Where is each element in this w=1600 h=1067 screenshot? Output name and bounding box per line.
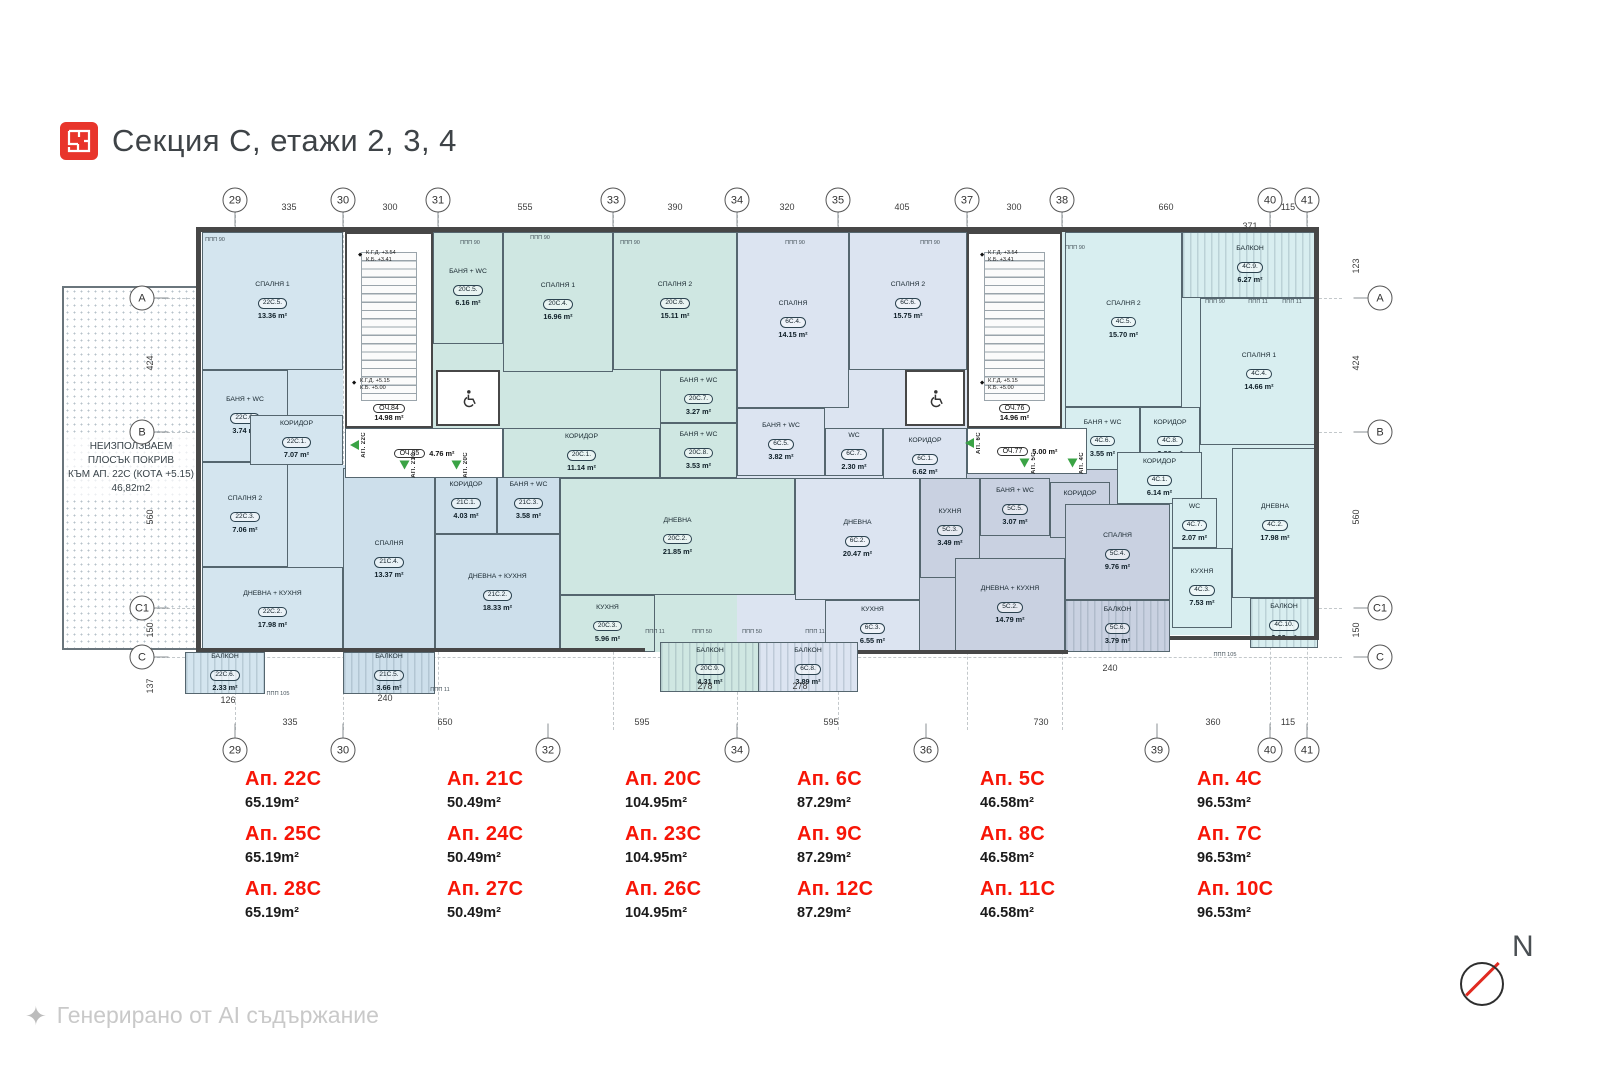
grid-marker: 33 — [601, 188, 626, 213]
room: ДНЕВНА 20C.2. 21.85 m² — [560, 478, 795, 595]
room: СПАЛНЯ 1 4C.4. 14.66 m² — [1200, 298, 1318, 445]
dimension-label: 595 — [823, 717, 838, 727]
room-area: 4.03 m² — [449, 511, 482, 520]
room-code: 4C.4. — [1246, 369, 1272, 379]
room-name: КОРИДОР — [1063, 490, 1096, 499]
room-code: 6C.4. — [780, 317, 806, 327]
apartment-id: Ап. 7C — [1197, 823, 1382, 846]
legend-item: Ап. 8C 46.58m² — [980, 823, 1165, 866]
grid-marker: 29 — [223, 738, 248, 763]
grid-marker: 29 — [223, 188, 248, 213]
apartment-area: 46.58m² — [980, 795, 1165, 811]
room-code: 20C.5. — [453, 285, 482, 295]
room-name: БАНЯ + WC — [680, 377, 718, 386]
compass-ring-icon — [1460, 962, 1504, 1006]
apartment-id: Ап. 23C — [625, 823, 810, 846]
room-area: 15.75 m² — [891, 311, 925, 320]
entrance-arrow-icon: АП. 20C — [452, 452, 469, 478]
room-area: 3.07 m² — [996, 517, 1034, 526]
wall — [196, 227, 1318, 232]
row-marker: C — [1368, 645, 1393, 670]
apartment-id: Ап. 4C — [1197, 768, 1382, 791]
room: БАЛКОН 21C.5. 3.66 m² — [343, 652, 435, 694]
window-marker: ППП 90 — [1065, 245, 1085, 251]
dimension-label: 278 — [792, 681, 807, 691]
north-letter: N — [1512, 930, 1534, 964]
room-name: КОРИДОР — [565, 433, 598, 442]
room-area: 6.27 m² — [1236, 275, 1264, 284]
legend-item: Ап. 9C 87.29m² — [797, 823, 982, 866]
room: СПАЛНЯ 2 20C.6. 15.11 m² — [613, 232, 737, 370]
window-marker: ППП 90 — [530, 235, 550, 241]
entrance-label: АП. 5C — [1031, 452, 1037, 474]
elevation-mark: К.Г.Д. +3.54 К.Б. +3.41 — [358, 250, 396, 264]
legend-item: Ап. 6C 87.29m² — [797, 768, 982, 811]
apartment-area: 104.95m² — [625, 795, 810, 811]
apartment-area: 46.58m² — [980, 850, 1165, 866]
legend-item: Ап. 21C 50.49m² — [447, 768, 632, 811]
arrow-icon — [965, 438, 974, 448]
room: БАЛКОН 4C.9. 6.27 m² — [1182, 232, 1318, 298]
apartment-id: Ап. 20C — [625, 768, 810, 791]
room-name: ДНЕВНА + КУХНЯ — [981, 585, 1039, 594]
room-area: 3.53 m² — [680, 461, 718, 470]
grid-marker: 34 — [725, 188, 750, 213]
grid-marker: 36 — [914, 738, 939, 763]
room-code: 6C.7. — [841, 449, 867, 459]
legend-item: Ап. 11C 46.58m² — [980, 878, 1165, 921]
room-area: 17.98 m² — [243, 620, 301, 629]
core-code: ОЧ.76 — [999, 404, 1031, 413]
room-code: 22C.1. — [282, 437, 311, 447]
room-name: ДНЕВНА + КУХНЯ — [468, 573, 526, 582]
room-name: СПАЛНЯ — [778, 300, 807, 309]
window-marker: ППП 50 — [742, 629, 762, 635]
window-marker: ППП 90 — [785, 240, 805, 246]
dimension-label: 123 — [1351, 258, 1361, 273]
entrance-label: АП. 21C — [411, 452, 417, 478]
dimension-label: 126 — [220, 695, 235, 705]
wall — [196, 227, 201, 652]
dimension-label: 335 — [282, 717, 297, 727]
apartment-id: Ап. 5C — [980, 768, 1165, 791]
room-code: 6C.1. — [912, 454, 938, 464]
window-marker: ППП 90 — [1205, 299, 1225, 305]
sparkle-icon: ✦ — [25, 1003, 47, 1029]
grid-marker: 41 — [1295, 738, 1320, 763]
room-code: 20C.4. — [543, 299, 572, 309]
room-name: WC — [1182, 503, 1208, 512]
grid-marker: 40 — [1258, 738, 1283, 763]
apartment-area: 96.53m² — [1197, 795, 1382, 811]
room-code: 4C.10. — [1269, 620, 1298, 630]
legend-item: Ап. 5C 46.58m² — [980, 768, 1165, 811]
elevator-wheelchair-icon — [905, 370, 965, 426]
apartment-id: Ап. 9C — [797, 823, 982, 846]
room: БАНЯ + WC 6C.5. 3.82 m² — [737, 408, 825, 476]
dimension-label: 405 — [894, 202, 909, 212]
apartment-area: 65.19m² — [245, 795, 430, 811]
room: ДНЕВНА 6C.2. 20.47 m² — [795, 478, 920, 600]
room-code: 4C.3. — [1189, 585, 1215, 595]
elevation-mark: К.Г.Д. +3.54 К.Б. +3.41 — [980, 250, 1018, 264]
room-area: 5.96 m² — [593, 634, 622, 643]
room-area: 2.07 m² — [1182, 533, 1208, 542]
dimension-label: 150 — [1351, 622, 1361, 637]
room-area: 20.47 m² — [843, 549, 872, 558]
dimension-label: 650 — [437, 717, 452, 727]
room: СПАЛНЯ 2 4C.5. 15.70 m² — [1065, 232, 1182, 407]
apartment-area: 65.19m² — [245, 850, 430, 866]
room-name: БАЛКОН — [1269, 603, 1298, 612]
wall — [196, 648, 645, 652]
room-code: 22C.5. — [258, 298, 287, 308]
arrow-icon — [350, 440, 359, 450]
apartment-area: 104.95m² — [625, 850, 810, 866]
dimension-label: 335 — [281, 202, 296, 212]
window-marker: ППП 11 — [805, 629, 824, 635]
room-area: 7.07 m² — [280, 450, 313, 459]
room-name: БАЛКОН — [695, 647, 724, 656]
room-name: БАНЯ + WC — [449, 268, 487, 277]
room-name: СПАЛНЯ 1 — [541, 282, 575, 291]
dimension-label: 278 — [697, 681, 712, 691]
room-area: 6.16 m² — [449, 298, 487, 307]
grid-marker: 30 — [331, 188, 356, 213]
room-name: БАНЯ + WC — [680, 431, 718, 440]
room-name: БАЛКОН — [794, 647, 822, 656]
dimension-label: 555 — [517, 202, 532, 212]
room-area: 9.76 m² — [1103, 562, 1132, 571]
grid-marker: 37 — [955, 188, 980, 213]
legend-item: Ап. 28C 65.19m² — [245, 878, 430, 921]
room-area: 16.96 m² — [541, 312, 575, 321]
row-marker: C1 — [1368, 596, 1393, 621]
lobby: ОЧ.85 4.76 m² — [345, 428, 503, 478]
legend-item: Ап. 27C 50.49m² — [447, 878, 632, 921]
room-area: 3.58 m² — [510, 511, 548, 520]
grid-marker: 31 — [426, 188, 451, 213]
room-code: 22C.6. — [210, 670, 239, 680]
dimension-label: 115 — [1281, 717, 1295, 727]
room: КОРИДОР 22C.1. 7.07 m² — [250, 415, 343, 465]
room-name: СПАЛНЯ — [374, 540, 403, 549]
legend-item: Ап. 24C 50.49m² — [447, 823, 632, 866]
footer: ✦ Генерирано от AI съдържание — [25, 1002, 379, 1029]
entrance-label: АП. 22C — [361, 432, 367, 458]
room-area: 2.33 m² — [210, 683, 239, 692]
room-code: 4C.8. — [1157, 436, 1183, 446]
apartment-id: Ап. 28C — [245, 878, 430, 901]
room: КУХНЯ 4C.3. 7.53 m² — [1172, 548, 1232, 628]
room-code: 22C.3. — [230, 512, 259, 522]
room-area: 3.79 m² — [1104, 636, 1132, 645]
apartment-id: Ап. 22C — [245, 768, 430, 791]
header: Секция С, етажи 2, 3, 4 — [60, 122, 457, 160]
legend-item: Ап. 23C 104.95m² — [625, 823, 810, 866]
room-code: 20C.9. — [695, 664, 724, 674]
room-code: 20C.6. — [660, 298, 689, 308]
room: СПАЛНЯ 1 22C.5. 13.36 m² — [202, 232, 343, 370]
room-area: 15.11 m² — [658, 311, 692, 320]
room-area: 18.33 m² — [468, 603, 526, 612]
core-code: ОЧ.84 — [373, 404, 405, 413]
room: ДНЕВНА + КУХНЯ 22C.2. 17.98 m² — [202, 567, 343, 652]
room: СПАЛНЯ 21C.4. 13.37 m² — [343, 468, 435, 652]
room-area: 11.14 m² — [565, 463, 598, 472]
room-name: БАНЯ + WC — [996, 487, 1034, 496]
legend-item: Ап. 4C 96.53m² — [1197, 768, 1382, 811]
room-code: 5C.5. — [1002, 504, 1028, 514]
room-area: 3.27 m² — [680, 407, 718, 416]
apartment-id: Ап. 11C — [980, 878, 1165, 901]
dimension-label: 371 — [1242, 221, 1257, 231]
apartment-area: 46.58m² — [980, 905, 1165, 921]
window-marker: ППП 90 — [205, 237, 225, 243]
entrance-arrow-icon: АП. 5C — [1020, 452, 1037, 474]
room-name: КОРИДОР — [908, 437, 941, 446]
entrance-label: АП. 20C — [463, 452, 469, 478]
dimension-label: 240 — [377, 693, 392, 703]
room-name: БАЛКОН — [1104, 606, 1132, 615]
page: Секция С, етажи 2, 3, 4 НЕИЗПОЛЗВАЕМ ПЛО… — [0, 0, 1600, 1067]
dimension-label: 560 — [1351, 509, 1361, 524]
apartment-id: Ап. 27C — [447, 878, 632, 901]
entrance-label: АП. 6C — [976, 432, 982, 454]
room-name: БАЛКОН — [1236, 245, 1264, 254]
room-code: 5C.2. — [997, 602, 1023, 612]
room: СПАЛНЯ 1 20C.4. 16.96 m² — [503, 232, 613, 372]
room-name: СПАЛНЯ 2 — [1106, 300, 1140, 309]
terrace-note: НЕИЗПОЛЗВАЕМ ПЛОСЪК ПОКРИВ КЪМ АП. 22С (… — [66, 436, 196, 500]
room-name: КУХНЯ — [860, 606, 886, 615]
room-area: 3.66 m² — [374, 683, 403, 692]
apartment-area: 96.53m² — [1197, 905, 1382, 921]
room-area: 2.30 m² — [841, 462, 867, 471]
room-name: БАНЯ + WC — [226, 396, 264, 405]
grid-marker: 41 — [1295, 188, 1320, 213]
room-area: 15.70 m² — [1106, 330, 1140, 339]
window-marker: ППП 11 — [645, 629, 664, 635]
legend-item: Ап. 12C 87.29m² — [797, 878, 982, 921]
window-marker: ППП 90 — [460, 240, 480, 246]
room-name: БАЛКОН — [210, 653, 239, 662]
room-area: 6.14 m² — [1143, 488, 1176, 497]
room: СПАЛНЯ 6C.4. 14.15 m² — [737, 232, 849, 408]
room-area: 3.55 m² — [1084, 449, 1122, 458]
apartment-area: 104.95m² — [625, 905, 810, 921]
arrow-icon — [1020, 458, 1030, 467]
room-name: КУХНЯ — [593, 604, 622, 613]
legend-item: Ап. 22C 65.19m² — [245, 768, 430, 811]
dimension-label: 137 — [145, 678, 155, 693]
room-area: 13.37 m² — [374, 570, 403, 579]
dimension-label: 150 — [145, 622, 155, 637]
grid-marker: 35 — [826, 188, 851, 213]
room: БАНЯ + WC 20C.7. 3.27 m² — [660, 370, 737, 423]
window-marker: ППП 11 — [430, 687, 449, 693]
room: ДНЕВНА + КУХНЯ 21C.2. 18.33 m² — [435, 534, 560, 652]
room-name: СПАЛНЯ 2 — [228, 495, 262, 504]
room-name: КОРИДОР — [280, 420, 313, 429]
legend-item: Ап. 26C 104.95m² — [625, 878, 810, 921]
room-code: 6C.3. — [860, 623, 886, 633]
room-area: 14.79 m² — [981, 615, 1039, 624]
room-name: ДНЕВНА — [663, 517, 692, 526]
room-code: 4C.1. — [1147, 475, 1173, 485]
dimension-label: 424 — [145, 355, 155, 370]
room-code: 22C.2. — [258, 607, 287, 617]
row-marker: C1 — [130, 596, 155, 621]
room-area: 14.15 m² — [778, 330, 807, 339]
room-code: 6C.8. — [795, 664, 821, 674]
room-area: 13.36 m² — [255, 311, 289, 320]
legend-item: Ап. 10C 96.53m² — [1197, 878, 1382, 921]
dimension-label: 360 — [1205, 717, 1220, 727]
legend-item: Ап. 25C 65.19m² — [245, 823, 430, 866]
room-name: КУХНЯ — [1189, 568, 1215, 577]
room-name: БАНЯ + WC — [1084, 419, 1122, 428]
apartment-id: Ап. 24C — [447, 823, 632, 846]
room-name: ДНЕВНА + КУХНЯ — [243, 590, 301, 599]
entrance-arrow-icon: АП. 22C — [350, 432, 367, 458]
row-marker: B — [1368, 420, 1393, 445]
room-area: 7.53 m² — [1189, 598, 1215, 607]
arrow-icon — [1068, 458, 1078, 467]
dimension-label: 320 — [779, 202, 794, 212]
room-name: БАЛКОН — [374, 653, 403, 662]
apartment-id: Ап. 25C — [245, 823, 430, 846]
room-name: СПАЛНЯ 2 — [891, 281, 925, 290]
window-marker: ППП 11 — [1248, 299, 1267, 305]
window-marker: ППП 105 — [267, 691, 290, 697]
room-name: ДНЕВНА — [843, 519, 872, 528]
room-code: 4C.7. — [1182, 520, 1208, 530]
page-title: Секция С, етажи 2, 3, 4 — [112, 123, 457, 159]
room-name: КОРИДОР — [449, 481, 482, 490]
apartment-id: Ап. 6C — [797, 768, 982, 791]
room: БАЛКОН 4C.10. 3.98 m² — [1250, 598, 1318, 648]
dimension-label: 424 — [1351, 355, 1361, 370]
room-name: ДНЕВНА — [1260, 503, 1289, 512]
dimension-label: 240 — [1102, 663, 1117, 673]
row-marker: A — [130, 286, 155, 311]
wall — [1170, 636, 1318, 640]
room: СПАЛНЯ 5C.4. 9.76 m² — [1065, 504, 1170, 600]
room-code: 5C.4. — [1105, 549, 1131, 559]
grid-marker: 30 — [331, 738, 356, 763]
entrance-arrow-icon: АП. 21C — [400, 452, 417, 478]
room-code: 20C.1. — [567, 450, 596, 460]
dimension-label: 730 — [1033, 717, 1048, 727]
grid-marker: 32 — [536, 738, 561, 763]
apartment-id: Ап. 10C — [1197, 878, 1382, 901]
brand-logo-icon — [60, 122, 98, 160]
core-area: 14.96 m² — [1000, 413, 1029, 422]
room: WC 4C.7. 2.07 m² — [1172, 498, 1217, 548]
footer-text: Генерирано от AI съдържание — [57, 1002, 379, 1029]
room-area: 6.55 m² — [860, 636, 886, 645]
dimension-label: 300 — [382, 202, 397, 212]
room-code: 5C.6. — [1105, 623, 1131, 633]
room-name: КОРИДОР — [1153, 419, 1186, 428]
room: СПАЛНЯ 2 22C.3. 7.06 m² — [202, 462, 288, 567]
wall — [1314, 227, 1319, 640]
entrance-arrow-icon: АП. 6C — [965, 432, 982, 454]
apartment-id: Ап. 26C — [625, 878, 810, 901]
apartment-area: 50.49m² — [447, 905, 632, 921]
room: WC 6C.7. 2.30 m² — [825, 428, 883, 476]
entrance-label: АП. 4C — [1079, 452, 1085, 474]
apartment-area: 96.53m² — [1197, 850, 1382, 866]
room: БАНЯ + WC 20C.8. 3.53 m² — [660, 423, 737, 478]
room: КУХНЯ 20C.3. 5.96 m² — [560, 595, 655, 652]
room-name: СПАЛНЯ 1 — [1242, 352, 1276, 361]
apartment-area: 87.29m² — [797, 905, 982, 921]
dimension-label: 595 — [634, 717, 649, 727]
room-code: 4C.6. — [1090, 436, 1116, 446]
apartment-area: 65.19m² — [245, 905, 430, 921]
arrow-icon — [400, 460, 410, 469]
wall — [858, 650, 1068, 654]
room-name: КУХНЯ — [937, 508, 963, 517]
room-area: 17.98 m² — [1260, 533, 1289, 542]
room-code: 21C.5. — [374, 670, 403, 680]
room-code: 21C.2. — [483, 590, 512, 600]
room-code: 4C.5. — [1111, 317, 1137, 327]
room-area: 3.82 m² — [762, 452, 800, 461]
room-code: 20C.2. — [663, 534, 692, 544]
window-marker: ППП 50 — [692, 629, 712, 635]
room-code: 4C.2. — [1262, 520, 1288, 530]
grid-marker: 38 — [1050, 188, 1075, 213]
apartment-area: 87.29m² — [797, 850, 982, 866]
room-code: 21C.3. — [514, 498, 543, 508]
elevation-mark: К.Г.Д. +5.15 К.Б. +5.00 — [980, 378, 1018, 392]
room-name: БАНЯ + WC — [762, 422, 800, 431]
room: КОРИДОР 20C.1. 11.14 m² — [503, 428, 660, 478]
room-area: 21.85 m² — [663, 547, 692, 556]
room: ДНЕВНА 4C.2. 17.98 m² — [1232, 448, 1318, 598]
room-area: 6.62 m² — [908, 467, 941, 476]
room-area: 7.06 m² — [228, 525, 262, 534]
room-code: 20C.7. — [684, 394, 713, 404]
room-name: СПАЛНЯ 2 — [658, 281, 692, 290]
row-marker: C — [130, 645, 155, 670]
entrance-arrow-icon: АП. 4C — [1068, 452, 1085, 474]
room: БАЛКОН 6C.8. 3.89 m² — [758, 642, 858, 692]
apartment-area: 50.49m² — [447, 850, 632, 866]
window-marker: ППП 90 — [620, 240, 640, 246]
room-code: 6C.5. — [768, 439, 794, 449]
room-code: 4C.9. — [1237, 262, 1263, 272]
core-area: 14.98 m² — [374, 413, 403, 422]
dimension-label: 390 — [667, 202, 682, 212]
room-code: 21C.4. — [374, 557, 403, 567]
dimension-label: 300 — [1006, 202, 1021, 212]
room: БАЛКОН 22C.6. 2.33 m² — [185, 652, 265, 694]
room-name: СПАЛНЯ — [1103, 532, 1132, 541]
arrow-icon — [452, 460, 462, 469]
room: ДНЕВНА + КУХНЯ 5C.2. 14.79 m² — [955, 558, 1065, 652]
room: БАНЯ + WC 20C.5. 6.16 m² — [433, 232, 503, 344]
room: БАЛКОН 5C.6. 3.79 m² — [1065, 600, 1170, 652]
elevator-wheelchair-icon — [436, 370, 500, 426]
room-name: СПАЛНЯ 1 — [255, 281, 289, 290]
grid-marker: 34 — [725, 738, 750, 763]
window-marker: ППП 105 — [1214, 652, 1237, 658]
apartment-id: Ап. 8C — [980, 823, 1165, 846]
